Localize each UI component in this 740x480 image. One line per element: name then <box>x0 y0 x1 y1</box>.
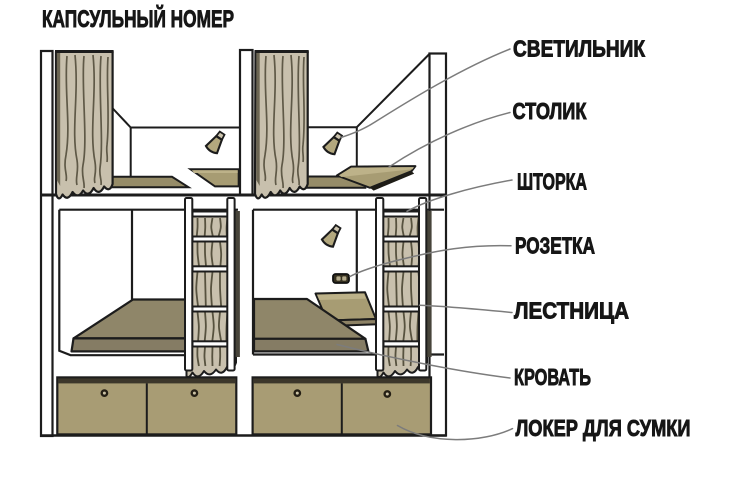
svg-text:КРОВАТЬ: КРОВАТЬ <box>514 364 591 390</box>
svg-text:СВЕТИЛЬНИК: СВЕТИЛЬНИК <box>513 36 646 62</box>
svg-text:ЛЕСТНИЦА: ЛЕСТНИЦА <box>514 298 629 324</box>
svg-text:КАПСУЛЬНЫЙ НОМЕР: КАПСУЛЬНЫЙ НОМЕР <box>42 5 234 33</box>
svg-text:СТОЛИК: СТОЛИК <box>513 98 588 124</box>
svg-text:ЛОКЕР ДЛЯ СУМКИ: ЛОКЕР ДЛЯ СУМКИ <box>516 415 691 441</box>
svg-text:ШТОРКА: ШТОРКА <box>517 169 587 195</box>
svg-text:РОЗЕТКА: РОЗЕТКА <box>515 233 595 259</box>
